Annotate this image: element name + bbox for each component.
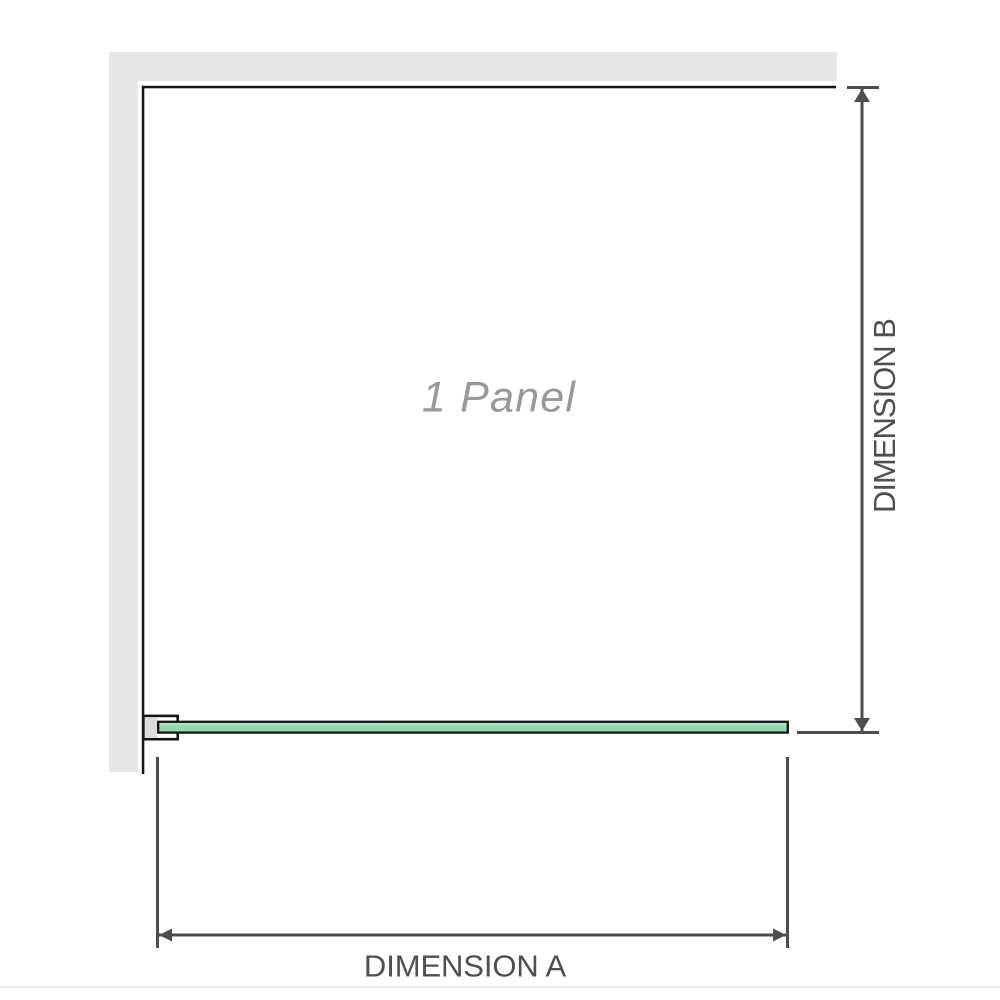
svg-text:1 Panel: 1 Panel [422, 374, 576, 422]
svg-text:DIMENSION B: DIMENSION B [867, 319, 902, 513]
svg-text:DIMENSION A: DIMENSION A [364, 949, 567, 984]
